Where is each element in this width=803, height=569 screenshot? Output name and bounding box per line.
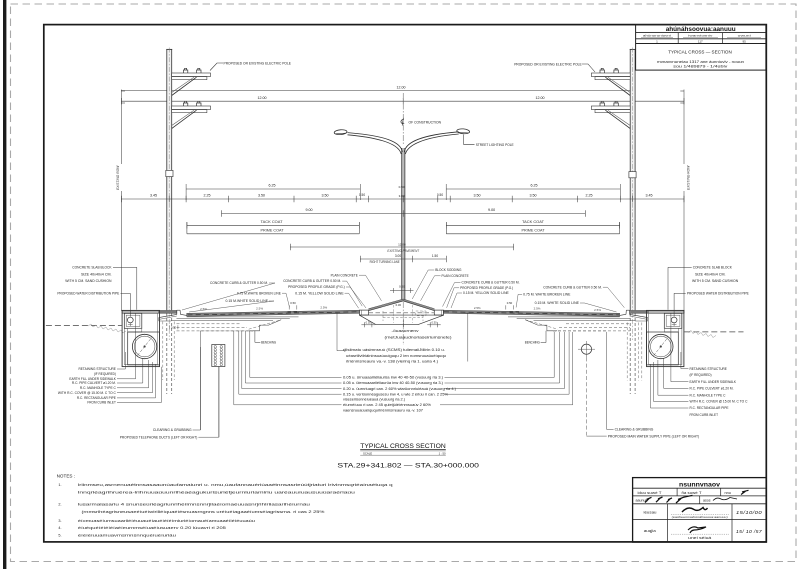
svg-text:lriinmseu,asrnenuaétnnsasaaunú: lriinmseu,asrnenuaétnnsasaaunúaufamaiunr… xyxy=(78,483,393,487)
svg-text:EXISTING PAVEMENT: EXISTING PAVEMENT xyxy=(387,249,420,253)
svg-text:2.5%: 2.5% xyxy=(474,306,481,310)
svg-text:2.5%: 2.5% xyxy=(594,308,601,312)
svg-text:TACK COAT: TACK COAT xyxy=(522,220,545,224)
svg-text:R.C. PIPE CULVERT ø1.20 M.: R.C. PIPE CULVERT ø1.20 M. xyxy=(72,381,116,385)
svg-text:vaensruuaúuéíququrlríénmsrreau: vaensruuaúuéíququrlríénmsrreauru va.-v. … xyxy=(343,409,423,413)
svg-text:CLEARING & GRUBBING: CLEARING & GRUBBING xyxy=(615,428,654,432)
svg-text:ña suwé T: ña suwé T xyxy=(682,491,703,495)
svg-text:0.15 u. veriüonnéagusesu inw 4: 0.15 u. veriüonnéagusesu inw 4, u wie 2 … xyxy=(343,392,449,396)
svg-text:nsunnvnaov: nsunnvnaov xyxy=(679,481,720,488)
svg-text:iéusau: iéusau xyxy=(644,510,657,514)
svg-text:éíuéquéíéíéíéíaéíeurnmséíuaéíu: éíuéquéíéíéíéíaéíeurnmséíuaéíusuaerv 0.2… xyxy=(78,526,226,530)
svg-text:6.25: 6.25 xyxy=(530,184,537,188)
svg-text:3.45: 3.45 xyxy=(645,194,652,198)
svg-text:CONCRETE CURB & GUTTER 0.50 M.: CONCRETE CURB & GUTTER 0.50 M. xyxy=(210,281,268,285)
svg-text:SCALE: SCALE xyxy=(363,451,372,455)
svg-text:3.50: 3.50 xyxy=(321,194,328,198)
svg-text:rlríénmsrreauru va.-v. 138 (vi: rlríénmsrreauru va.-v. 138 (vierinq ria … xyxy=(346,360,438,364)
svg-text:R.C. MANHOLE TYPE C: R.C. MANHOLE TYPE C xyxy=(80,386,116,390)
svg-text:PROPOSED MAIN WATER SUPPLY PIP: PROPOSED MAIN WATER SUPPLY PIPE (LEFT OR… xyxy=(608,434,700,438)
svg-text:PRIME COAT: PRIME COAT xyxy=(261,229,285,233)
svg-text:1.50: 1.50 xyxy=(432,254,438,258)
svg-text:lusarmalasariu 4 snunseúriéagr: lusarmalasariu 4 snunseúriéagriunrihéíim… xyxy=(78,503,310,507)
svg-text:3.50: 3.50 xyxy=(529,194,536,198)
svg-text:nnu: nnu xyxy=(725,491,731,495)
svg-text:R.C. PIPE CULVERT ø1.20 M.: R.C. PIPE CULVERT ø1.20 M. xyxy=(690,387,734,391)
svg-text:9.00: 9.00 xyxy=(305,208,312,212)
svg-text:PLAIN CONCRETE: PLAIN CONCRETE xyxy=(331,273,359,277)
svg-text:PROPOSED WATER DISTRIBUTION PI: PROPOSED WATER DISTRIBUTION PIPE xyxy=(57,292,119,296)
svg-text:EARTH FILL UNDER SIDEWALK: EARTH FILL UNDER SIDEWALK xyxy=(690,380,737,384)
svg-text:PROPOSED WATER DISTRIBUTION PI: PROPOSED WATER DISTRIBUTION PIPE xyxy=(687,292,749,296)
svg-text:BLOCK SODDING: BLOCK SODDING xyxy=(435,268,461,272)
svg-text:BENCHING: BENCHING xyxy=(261,341,276,345)
svg-text:RETAINING STRUCTURE: RETAINING STRUCTURE xyxy=(690,367,728,371)
svg-text:12.00: 12.00 xyxy=(397,86,406,90)
svg-text:CONCRETE SLAB BLOCK: CONCRETE SLAB BLOCK xyxy=(72,266,112,270)
svg-text:WITH R.C. COVER @ 15.00 M. C T: WITH R.C. COVER @ 15.00 M. C TO C xyxy=(58,391,116,395)
svg-text:PROPOSED TELEPHONE DUCTS (LEFT: PROPOSED TELEPHONE DUCTS (LEFT OR RIGHT) xyxy=(120,435,198,439)
svg-text:(rnetJuaaudnoriaseiriumsnete): (rnetJuaaudnoriaseiriumsnete) xyxy=(385,336,452,340)
svg-text:0.50: 0.50 xyxy=(507,301,513,305)
svg-text:(rnmsrihéagrisneusaeéíuéíwiril: (rnmsrihéagrisneusaeéíuéíwiriliéíquaéíés… xyxy=(82,510,326,514)
svg-text:0.50: 0.50 xyxy=(399,185,405,189)
svg-text:-öuaaurnenv: -öuaaurnenv xyxy=(392,329,419,333)
svg-text:15/10/00: 15/10/00 xyxy=(736,510,762,515)
svg-text:éíurnéíuuu ri can. 2 45 quietj: éíurnéíuuu ri can. 2 45 quietjúiéíénmsua… xyxy=(343,403,432,407)
svg-text:15/ 10 /57: 15/ 10 /57 xyxy=(736,529,762,534)
svg-text:SIZE 40x40x4 CM.: SIZE 40x40x4 CM. xyxy=(81,272,112,276)
svg-text:3.50: 3.50 xyxy=(473,194,480,198)
svg-text:BENCHING: BENCHING xyxy=(525,341,540,345)
svg-text:9.00: 9.00 xyxy=(488,208,495,212)
svg-text:RIGHT TURNING LANE: RIGHT TURNING LANE xyxy=(370,260,400,264)
svg-text:95: 95 xyxy=(743,40,747,44)
svg-text:0.50: 0.50 xyxy=(399,284,405,288)
svg-text:6.25: 6.25 xyxy=(268,184,275,188)
svg-text:0.05 u. ürnuaaariiéiiaurüa inw: 0.05 u. ürnuaaariiéiiaurüa inw 40 40-50 … xyxy=(343,376,443,380)
svg-text:PROPOSED PROFILE GRADE (P.G.): PROPOSED PROFILE GRADE (P.G.) xyxy=(288,285,345,289)
svg-text:4.: 4. xyxy=(58,526,61,530)
svg-text:0.05 u. üiemuaaariiéiiaurüa in: 0.05 u. üiemuaaariiéiiaurüa inw 40 40-50… xyxy=(343,381,443,385)
svg-text:SIZE 40x40x4 CM.: SIZE 40x40x4 CM. xyxy=(695,272,726,276)
svg-text:0.50: 0.50 xyxy=(290,301,296,305)
svg-text:2.5%: 2.5% xyxy=(256,307,263,311)
svg-text:EXISTING ROW: EXISTING ROW xyxy=(116,165,120,190)
svg-text:R.C. RECTANGULAR PIPE: R.C. RECTANGULAR PIPE xyxy=(77,396,116,400)
svg-text:0.30: 0.30 xyxy=(396,303,402,307)
svg-text:asos: asos xyxy=(703,499,711,503)
svg-text:5.: 5. xyxy=(58,534,61,538)
svg-text:PROPOSED OR EXISTING ELECTRIC: PROPOSED OR EXISTING ELECTRIC POLE xyxy=(514,62,582,66)
svg-text:RETAINING STRUCTURE: RETAINING STRUCTURE xyxy=(79,367,117,371)
svg-text:iduu suwé T: iduu suwé T xyxy=(638,491,663,495)
svg-text:auqjia: auqjia xyxy=(644,529,657,533)
svg-text:WITH 5 CM. SAND CUSHION: WITH 5 CM. SAND CUSHION xyxy=(65,279,111,283)
svg-text:unei séiuá: unei séiuá xyxy=(688,536,712,540)
svg-text:OF CONSTRUCTION: OF CONSTRUCTION xyxy=(409,120,442,124)
svg-text:rjilsiimatu uásimnsruú (SCMS): rjilsiimatu uásimnsruú (SCMS) tuiiemaiiJ… xyxy=(343,348,445,352)
svg-text:2.5%: 2.5% xyxy=(534,306,541,310)
svg-text:ahúnáhsoovua:aanuuu: ahúnáhsoovua:aanuuu xyxy=(666,26,736,33)
svg-text:0.30: 0.30 xyxy=(431,320,437,324)
svg-text:0.15 M. YELLOW SOLID LINE: 0.15 M. YELLOW SOLID LINE xyxy=(463,291,509,295)
svg-text:0.75 M. WHITE BROKEN LINE: 0.75 M. WHITE BROKEN LINE xyxy=(523,293,571,297)
svg-text:3.: 3. xyxy=(58,519,61,523)
svg-text:viseseriüonnéíuéauá (vusuurg r: viseseriüonnéíuéauá (vusuurg ria 2.) xyxy=(343,398,405,402)
svg-text:12.00: 12.00 xyxy=(398,242,406,246)
svg-text:2.25: 2.25 xyxy=(203,194,210,198)
svg-text:3.45: 3.45 xyxy=(150,194,157,198)
svg-text:uwuni: uwuni xyxy=(738,33,752,37)
svg-text:2.25: 2.25 xyxy=(585,194,592,198)
svg-text:0.50: 0.50 xyxy=(359,193,365,197)
svg-text:(éaúheennsahúnáhsooua:aanuuu): (éaúheennsahúnáhsooua:aanuuu) xyxy=(672,515,728,519)
svg-text:R.C. RECTANGULAR PIPE: R.C. RECTANGULAR PIPE xyxy=(690,406,729,410)
svg-text:3.00: 3.00 xyxy=(395,254,401,258)
svg-text:uéasrtilvtlriáininsuaúuuiguqu: uéasrtilvtlriáininsuaúuuiguqu 2 ien noms… xyxy=(346,354,446,358)
svg-text:0.15 M. YELLOW SOLID LINE: 0.15 M. YELLOW SOLID LINE xyxy=(295,291,344,295)
svg-text:iwanviosniv: iwanviosniv xyxy=(688,34,713,38)
svg-text:0.50: 0.50 xyxy=(437,193,443,197)
svg-text:117: 117 xyxy=(698,40,703,44)
svg-text:FROM CURB INLET: FROM CURB INLET xyxy=(690,413,719,417)
svg-text:WITH R.C. COVER @ 15.00 M. C T: WITH R.C. COVER @ 15.00 M. C TO C xyxy=(690,400,748,404)
svg-text:WITH 5 CM. SAND CUSHION: WITH 5 CM. SAND CUSHION xyxy=(692,279,738,283)
svg-text:(IF REQUIRED): (IF REQUIRED) xyxy=(690,373,713,377)
svg-text:PRIME COAT: PRIME COAT xyxy=(522,229,546,233)
svg-text:0.30: 0.30 xyxy=(366,320,372,324)
svg-text:ahūnoruniovni: ahūnoruniovni xyxy=(643,34,672,38)
svg-text:3.00: 3.00 xyxy=(399,194,405,198)
svg-text:CONCRETE CURB & GUTTER 0.50 M.: CONCRETE CURB & GUTTER 0.50 M. xyxy=(462,281,520,285)
svg-text:0.50: 0.50 xyxy=(171,325,177,329)
svg-text:TACK COAT: TACK COAT xyxy=(261,220,284,224)
svg-text:2.5%: 2.5% xyxy=(320,305,327,309)
svg-text:1.: 1. xyxy=(58,483,61,487)
svg-text:TYPICAL CROSS — SECTION: TYPICAL CROSS — SECTION xyxy=(668,50,732,56)
svg-text:R.C. MANHOLE TYPE C: R.C. MANHOLE TYPE C xyxy=(690,393,726,397)
svg-text:2.: 2. xyxy=(58,503,61,507)
svg-text:3.50: 3.50 xyxy=(258,194,265,198)
svg-text:TYPICAL CROSS SECTION: TYPICAL CROSS SECTION xyxy=(360,443,446,450)
svg-text:FROM CURB INLET: FROM CURB INLET xyxy=(87,401,116,405)
svg-text:0.20 u. üurnriuagri can. 2 60%: 0.20 u. üurnriuagri can. 2 60% wiarüonnr… xyxy=(343,387,456,391)
svg-text:0.15 M. WHITE SOLID LINE: 0.15 M. WHITE SOLID LINE xyxy=(535,301,580,305)
svg-text:2.5%: 2.5% xyxy=(200,307,207,311)
svg-text:STA.29+341.802 — STA.30+000.: STA.29+341.802 — STA.30+000.000 xyxy=(337,462,479,469)
svg-text:CONCRETE CURB & GUTTER 0.50 M.: CONCRETE CURB & GUTTER 0.50 M. xyxy=(543,285,602,289)
svg-text:PLAIN CONCRETE: PLAIN CONCRETE xyxy=(442,274,470,278)
svg-text:12.00: 12.00 xyxy=(535,96,544,100)
svg-text:CONCRETE SLAB BLOCK: CONCRETE SLAB BLOCK xyxy=(693,266,733,270)
svg-text:NOTES :: NOTES : xyxy=(57,474,76,479)
svg-text:éíomuaséíumsuaariiéíéuuauéíaué: éíomuaséíumsuaariiéíéuuauéíauéíéíéímiuri… xyxy=(78,519,255,523)
svg-text:STREET LIGHTING POLE: STREET LIGHTING POLE xyxy=(476,143,514,147)
svg-text:1 : 50: 1 : 50 xyxy=(439,451,446,455)
svg-text:éíéíéíuuamuavmsrnnsnnquéíuéíur: éíéíéíuuamuavmsrnnsnnquéíuéíuriáu xyxy=(78,534,176,538)
svg-text:CLEARING & GRUBBING: CLEARING & GRUBBING xyxy=(153,428,192,432)
svg-text:CONCRETE CURB & GUTTER 0.50 M.: CONCRETE CURB & GUTTER 0.50 M. xyxy=(283,279,341,283)
svg-text:PROPOSED PROFILE GRADE (P.G.): PROPOSED PROFILE GRADE (P.G.) xyxy=(460,286,514,290)
svg-text:PROPOSED OR EXISTING ELECTRIC: PROPOSED OR EXISTING ELECTRIC POLE xyxy=(224,61,292,65)
svg-text:sou 1/489879 - 1/4úbiv: sou 1/489879 - 1/4úbiv xyxy=(673,64,727,69)
svg-text:(IF REQUIRED): (IF REQUIRED) xyxy=(94,372,117,376)
svg-text:0.75 M.WHITE BROKEN LINE: 0.75 M.WHITE BROKEN LINE xyxy=(237,291,281,295)
svg-text:12.00: 12.00 xyxy=(257,96,266,100)
svg-text:EXISTING ROW: EXISTING ROW xyxy=(686,165,690,190)
svg-text:lnnqriéagrihruérea-lrihnuuaúuu: lnnqriéagrihruérea-lrihnuuaúuunrihéaéagu… xyxy=(78,491,355,495)
